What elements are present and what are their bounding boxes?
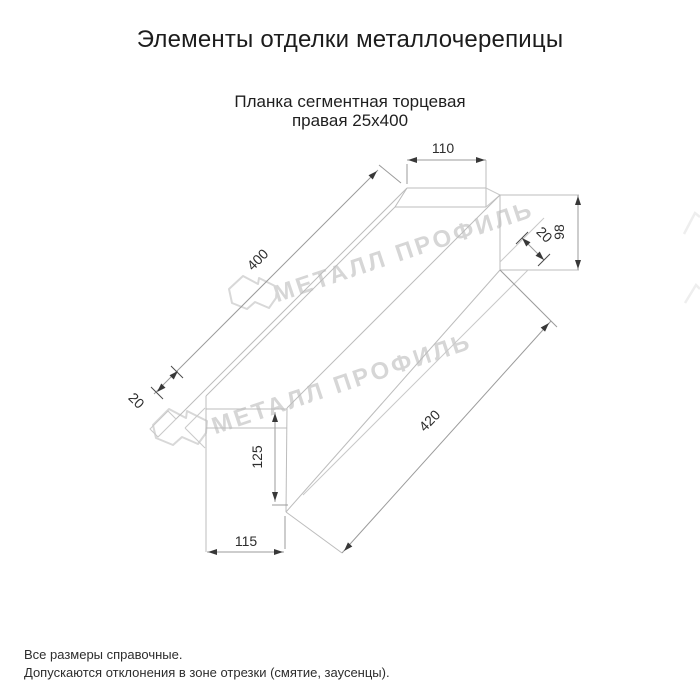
dim-20-left-label: 20 <box>125 389 147 411</box>
dim-98: 98 <box>551 195 581 270</box>
dim-20-right: 20 <box>516 223 556 266</box>
drawing-page: Элементы отделки металлочерепицы Планка … <box>0 0 700 700</box>
watermark-fragment-right-bottom <box>685 285 700 303</box>
drawing-notes: Все размеры справочные. Допускаются откл… <box>24 646 390 682</box>
dim-420: 420 <box>342 270 557 553</box>
dim-400-label: 400 <box>244 245 272 273</box>
technical-drawing: МЕТАЛЛ ПРОФИЛЬ МЕТАЛЛ ПРОФИЛЬ <box>0 0 700 700</box>
dim-110-label: 110 <box>432 140 455 156</box>
mp-logo-icon-1 <box>229 276 277 309</box>
dim-115: 115 <box>207 516 285 555</box>
note-line-1: Все размеры справочные. <box>24 646 390 664</box>
dim-115-label: 115 <box>235 533 258 549</box>
note-line-2: Допускаются отклонения в зоне отрезки (с… <box>24 664 390 682</box>
dim-125-label: 125 <box>249 445 265 469</box>
dim-110: 110 <box>407 140 486 184</box>
watermark-fragment-right-top <box>684 213 700 234</box>
dim-420-label: 420 <box>416 406 444 434</box>
dim-20-left: 20 <box>125 384 165 412</box>
